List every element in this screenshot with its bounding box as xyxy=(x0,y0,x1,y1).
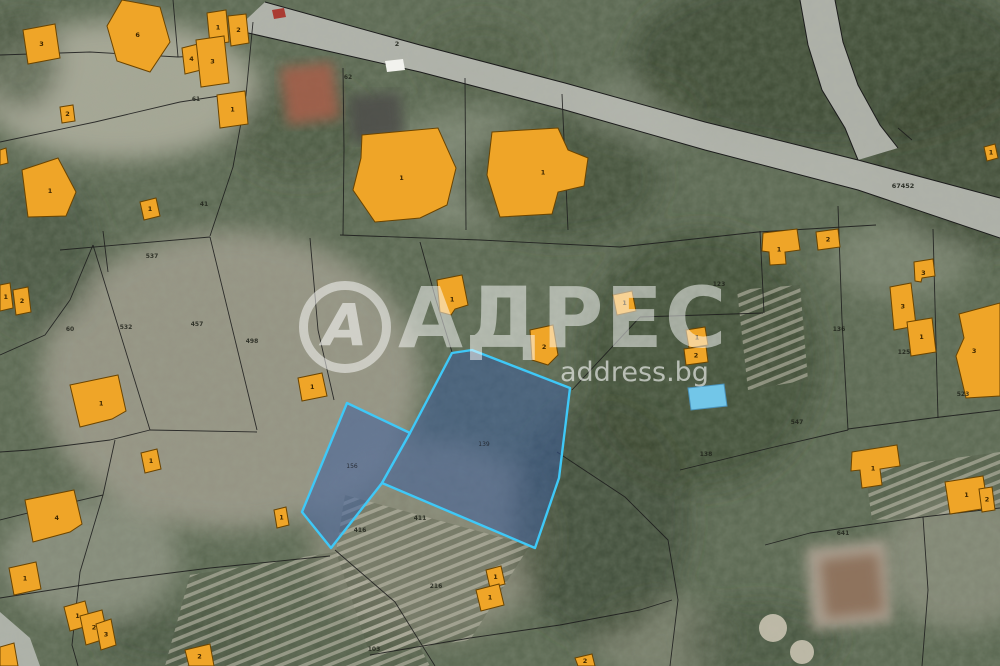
parcel-number: 61 xyxy=(192,96,200,103)
building-number: 1 xyxy=(488,594,493,602)
building-number: 1 xyxy=(149,457,154,465)
building-number: 1 xyxy=(450,296,455,304)
building-number: 1 xyxy=(230,106,235,114)
building-number: 1 xyxy=(871,464,876,472)
parcel-number: 532 xyxy=(120,324,133,331)
parcel-number: 547 xyxy=(791,419,804,426)
building-number: 3 xyxy=(104,631,109,639)
parcel-number: 411 xyxy=(414,515,427,522)
building-number: 1 xyxy=(399,174,404,182)
building-number: 2 xyxy=(65,110,70,118)
building-number: 2 xyxy=(583,657,588,665)
building-number: 1 xyxy=(48,187,53,195)
building-number: 3 xyxy=(900,303,905,311)
building-number: 1 xyxy=(279,514,284,522)
building-number: 1 xyxy=(695,334,700,342)
building-footprint[interactable] xyxy=(0,148,8,165)
building-number: 2 xyxy=(92,623,97,631)
photo-vehicle xyxy=(385,59,405,72)
building-number: 3 xyxy=(921,269,926,277)
building-number: 2 xyxy=(826,236,831,244)
building-number: 1 xyxy=(3,293,8,301)
highlighted-parcel-number: 139 xyxy=(478,441,490,448)
building-number: 1 xyxy=(919,333,924,341)
building-number: 1 xyxy=(989,149,994,157)
building-number: 2 xyxy=(694,352,699,360)
parcel-number: 216 xyxy=(430,583,443,590)
parcel-number: 416 xyxy=(354,527,367,534)
building-number: 3 xyxy=(972,347,977,355)
parcel-number: 537 xyxy=(146,253,159,260)
photo-tank xyxy=(759,614,787,642)
building-number: 1 xyxy=(622,299,627,307)
building-number: 1 xyxy=(964,491,969,499)
parcel-number: 123 xyxy=(713,281,726,288)
parcel-number: 138 xyxy=(700,451,713,458)
road-label: 2 xyxy=(395,40,400,48)
parcel-number: 136 xyxy=(833,326,846,333)
photo-house xyxy=(280,62,340,125)
building-footprint[interactable] xyxy=(956,303,1000,398)
garden-rows xyxy=(737,285,808,390)
photo-house xyxy=(820,553,884,618)
building-number: 1 xyxy=(216,24,221,32)
building-number: 1 xyxy=(23,575,28,583)
satellite-map[interactable]: 3612432111111211212331311124111123211112… xyxy=(0,0,1000,666)
parcel-number: 125 xyxy=(898,349,911,356)
parcel-number: 641 xyxy=(837,530,850,537)
building-number: 1 xyxy=(310,383,315,391)
parcel-number: 103 xyxy=(368,646,381,653)
photo-tank xyxy=(790,640,814,664)
building-number: 2 xyxy=(236,26,241,34)
parcel-number: 60 xyxy=(66,326,74,333)
building-number: 1 xyxy=(99,400,104,408)
swimming-pool xyxy=(688,384,727,410)
parcel-number: 62 xyxy=(344,74,352,81)
building-number: 2 xyxy=(197,653,202,661)
parcel-number: 498 xyxy=(246,338,259,345)
parcel-number: 41 xyxy=(200,201,208,208)
photo-vehicle xyxy=(272,8,286,19)
building-number: 3 xyxy=(39,40,44,48)
building-number: 2 xyxy=(20,297,25,305)
building-number: 1 xyxy=(148,205,153,213)
building-number: 3 xyxy=(210,58,215,66)
building-footprint[interactable] xyxy=(353,128,456,222)
building-number: 1 xyxy=(493,573,498,581)
building-number: 4 xyxy=(55,514,60,522)
building-number: 4 xyxy=(189,55,194,63)
highlighted-parcel-number: 156 xyxy=(346,463,358,470)
building-number: 1 xyxy=(75,612,80,620)
road-label: 67452 xyxy=(892,182,915,190)
building-number: 1 xyxy=(541,169,546,177)
building-number: 6 xyxy=(135,31,140,39)
parcel-number: 523 xyxy=(957,391,970,398)
building-number: 1 xyxy=(777,246,782,254)
building-number: 2 xyxy=(985,496,990,504)
building-number: 2 xyxy=(542,343,547,351)
parcel-number: 457 xyxy=(191,321,204,328)
map-canvas[interactable]: 3612432111111211212331311124111123211112… xyxy=(0,0,1000,666)
